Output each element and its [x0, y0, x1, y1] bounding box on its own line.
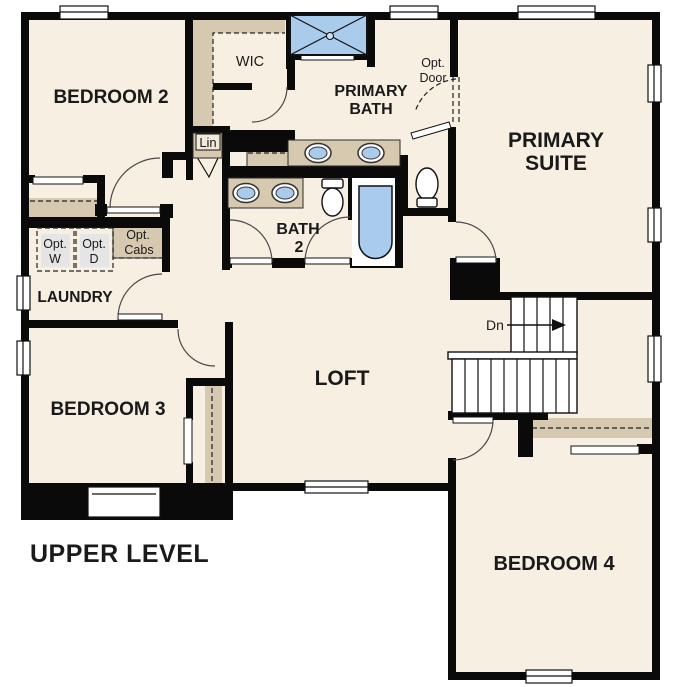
sink-basin [237, 187, 255, 199]
toilet-tank [322, 179, 343, 188]
wall-segment [272, 258, 305, 268]
wall-segment [222, 166, 403, 178]
primary-bath-label-line2: BATH [349, 101, 392, 118]
stairs-dn-label: Dn [486, 317, 504, 333]
wic-shelf-top [213, 20, 285, 33]
floor-plan-drawing: BEDROOM 2 WIC PRIMARY BATH Opt. Door PRI… [0, 0, 687, 687]
toilet-bowl [416, 168, 438, 200]
window [88, 487, 160, 517]
wall-segment [162, 152, 173, 178]
stair-lower-run [452, 359, 577, 413]
wall-segment [186, 378, 193, 420]
wall-segment [186, 462, 193, 487]
bath2-toilet [322, 179, 343, 216]
bedroom3-label: BEDROOM 3 [50, 399, 165, 420]
opt-dryer-label-line2: D [89, 252, 98, 266]
loft-label: LOFT [315, 367, 370, 390]
wic-label: WIC [236, 54, 264, 70]
sink-basin [276, 187, 294, 199]
wall-segment [637, 444, 660, 454]
wall-segment [518, 415, 533, 457]
sink-basin [309, 147, 327, 159]
primary-suite-label-line2: SUITE [525, 152, 587, 175]
window [17, 341, 30, 375]
bedroom2-closet-slider [33, 177, 83, 184]
wall-segment [213, 83, 252, 90]
opt-door-label-line1: Opt. [421, 56, 445, 70]
window [648, 208, 661, 242]
wic-shelving-band [193, 20, 213, 132]
bedroom4-door-leaf [453, 417, 493, 423]
primary-bath-label-line1: PRIMARY [334, 83, 408, 100]
window [518, 6, 595, 19]
wall-segment [21, 12, 29, 491]
opt-cabs-label-line1: Opt. [126, 228, 150, 242]
opt-cabs-label-line2: Cabs [124, 243, 153, 257]
wall-segment [448, 127, 456, 222]
laundry-label: LAUNDRY [37, 289, 113, 306]
wall-segment [448, 458, 456, 680]
bath2-label-line2: 2 [295, 239, 304, 256]
bedroom3-closet-shelf [205, 386, 222, 483]
bedroom4-closet-slider [571, 446, 639, 454]
wall-segment [227, 130, 295, 152]
primary-suite-door-leaf [456, 257, 496, 263]
toilet-tank [417, 198, 437, 207]
shower [290, 15, 367, 55]
bedroom3-closet-slider [184, 418, 192, 464]
opt-washer-label-line2: W [49, 252, 61, 266]
wall-segment [450, 12, 458, 77]
opt-dryer-label-line1: Opt. [82, 237, 106, 251]
bedroom4-label: BEDROOM 4 [493, 553, 615, 575]
stair-railing [448, 352, 577, 359]
plan-title: UPPER LEVEL [30, 540, 209, 568]
stair-upper-run [511, 297, 577, 355]
bathtub [352, 178, 395, 266]
bath2-tub-door-leaf [305, 258, 350, 264]
wall-segment [83, 175, 105, 183]
wall-segment [21, 320, 178, 328]
primary-toilet [416, 168, 438, 207]
window [648, 336, 661, 382]
wall-segment [395, 178, 403, 266]
primary-double-vanity [288, 140, 400, 166]
bedroom2-door-leaf [107, 207, 160, 213]
floor-plan-page: BEDROOM 2 WIC PRIMARY BATH Opt. Door PRI… [0, 0, 687, 687]
tub-basin [359, 186, 392, 259]
window [305, 481, 368, 493]
toilet-bowl [322, 188, 343, 216]
bath2-double-vanity [228, 178, 303, 208]
wall-segment [400, 208, 456, 216]
shower-drain [327, 33, 334, 40]
window [390, 6, 438, 19]
window [648, 65, 661, 102]
sink-basin [362, 147, 380, 159]
wall-segment [21, 217, 163, 228]
wall-segment [162, 215, 170, 272]
wall-segment [225, 322, 233, 491]
window [526, 670, 572, 683]
window [17, 276, 30, 310]
window [60, 6, 108, 19]
wall-segment [186, 126, 193, 180]
opt-door-label-line2: Door [419, 71, 446, 85]
primary-suite-label-line1: PRIMARY [508, 129, 604, 152]
bedroom2-label: BEDROOM 2 [53, 87, 168, 108]
bath2-door-leaf [230, 258, 272, 264]
wall-segment [450, 258, 500, 300]
opt-washer-label-line1: Opt. [43, 237, 67, 251]
linen-label: Lin [199, 135, 216, 150]
laundry-door-leaf [118, 314, 162, 320]
bath2-label-line1: BATH [276, 221, 319, 238]
